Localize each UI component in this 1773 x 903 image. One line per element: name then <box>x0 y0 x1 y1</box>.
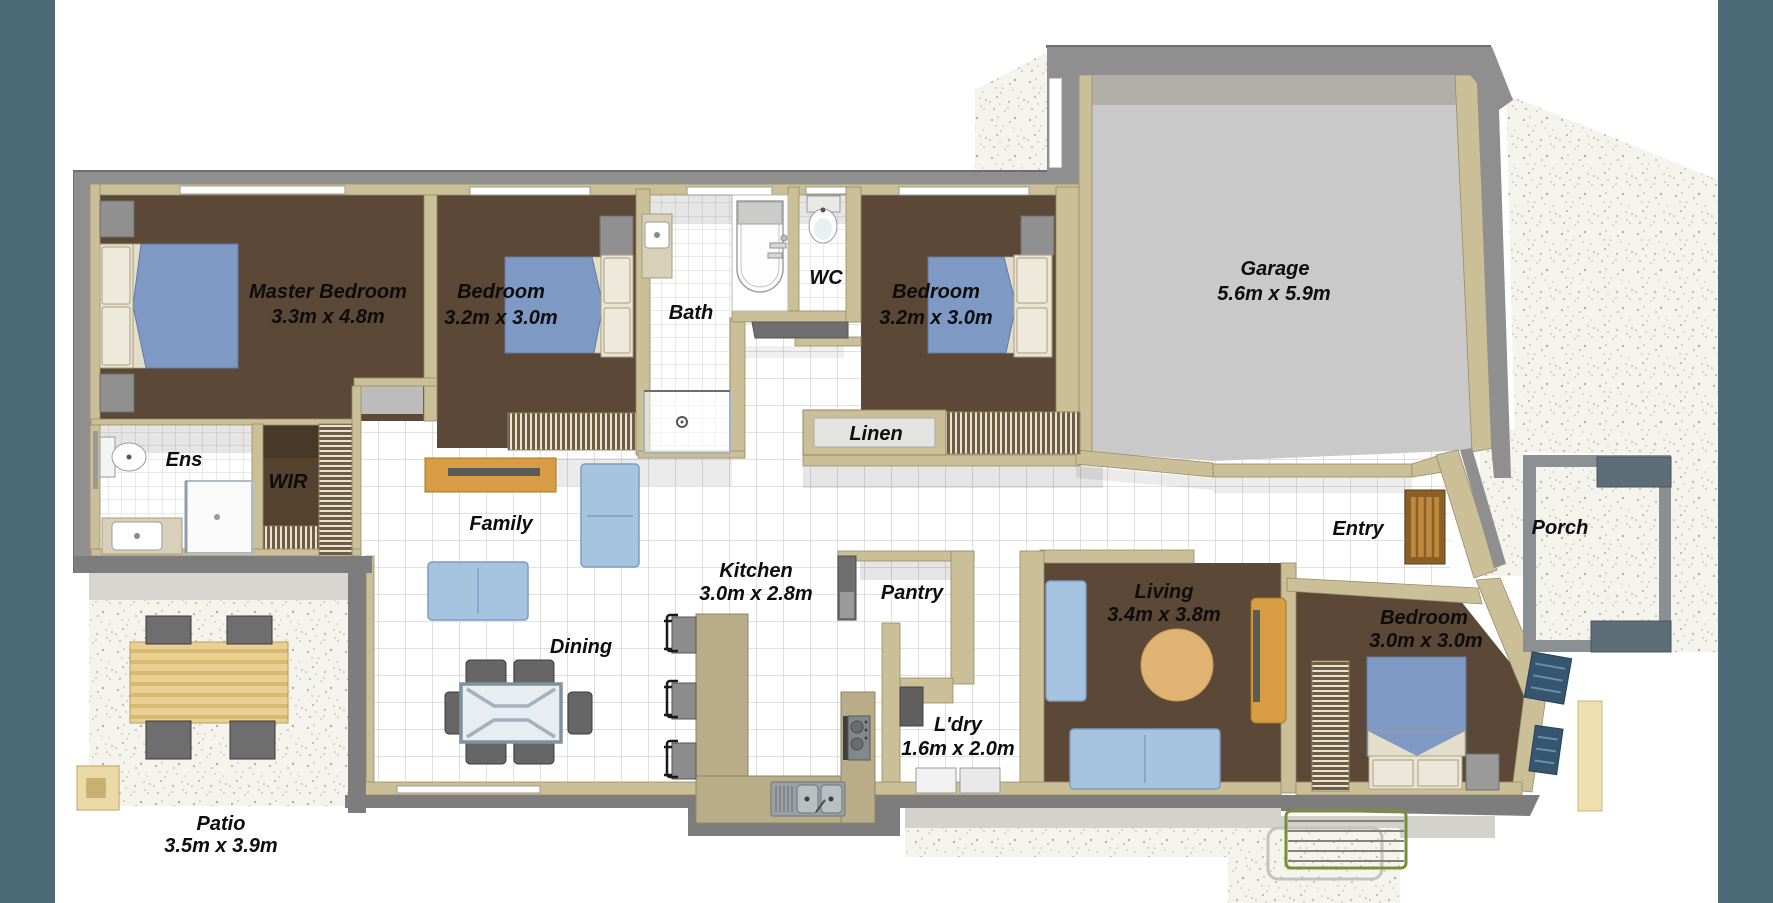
svg-text:WC: WC <box>809 267 843 289</box>
svg-text:3.3m x 4.8m: 3.3m x 4.8m <box>271 306 384 328</box>
svg-text:Family: Family <box>469 513 533 535</box>
svg-text:Bedroom: Bedroom <box>457 281 545 303</box>
svg-text:5.6m x 5.9m: 5.6m x 5.9m <box>1217 283 1330 305</box>
svg-text:Pantry: Pantry <box>881 582 944 604</box>
svg-text:1.6m x 2.0m: 1.6m x 2.0m <box>901 738 1014 760</box>
svg-text:Master Bedroom: Master Bedroom <box>249 281 407 303</box>
svg-text:Garage: Garage <box>1241 258 1310 280</box>
svg-text:Linen: Linen <box>849 423 902 445</box>
svg-text:Bath: Bath <box>669 302 713 324</box>
svg-text:3.0m x 2.8m: 3.0m x 2.8m <box>699 583 812 605</box>
svg-text:Dining: Dining <box>550 636 612 658</box>
svg-text:L'dry: L'dry <box>934 714 983 736</box>
svg-text:Patio: Patio <box>197 813 246 835</box>
svg-text:Ens: Ens <box>166 449 203 471</box>
svg-text:Kitchen: Kitchen <box>719 560 792 582</box>
svg-text:Bedroom: Bedroom <box>1380 607 1468 629</box>
svg-text:3.0m x 3.0m: 3.0m x 3.0m <box>1369 630 1482 652</box>
svg-text:3.2m x 3.0m: 3.2m x 3.0m <box>879 307 992 329</box>
svg-text:Living: Living <box>1135 581 1194 603</box>
svg-text:Porch: Porch <box>1532 517 1589 539</box>
svg-text:Bedroom: Bedroom <box>892 281 980 303</box>
svg-text:WIR: WIR <box>269 471 308 493</box>
svg-text:3.5m x 3.9m: 3.5m x 3.9m <box>164 835 277 857</box>
svg-text:3.2m x 3.0m: 3.2m x 3.0m <box>444 307 557 329</box>
svg-text:3.4m x 3.8m: 3.4m x 3.8m <box>1107 604 1220 626</box>
svg-text:Entry: Entry <box>1332 518 1384 540</box>
